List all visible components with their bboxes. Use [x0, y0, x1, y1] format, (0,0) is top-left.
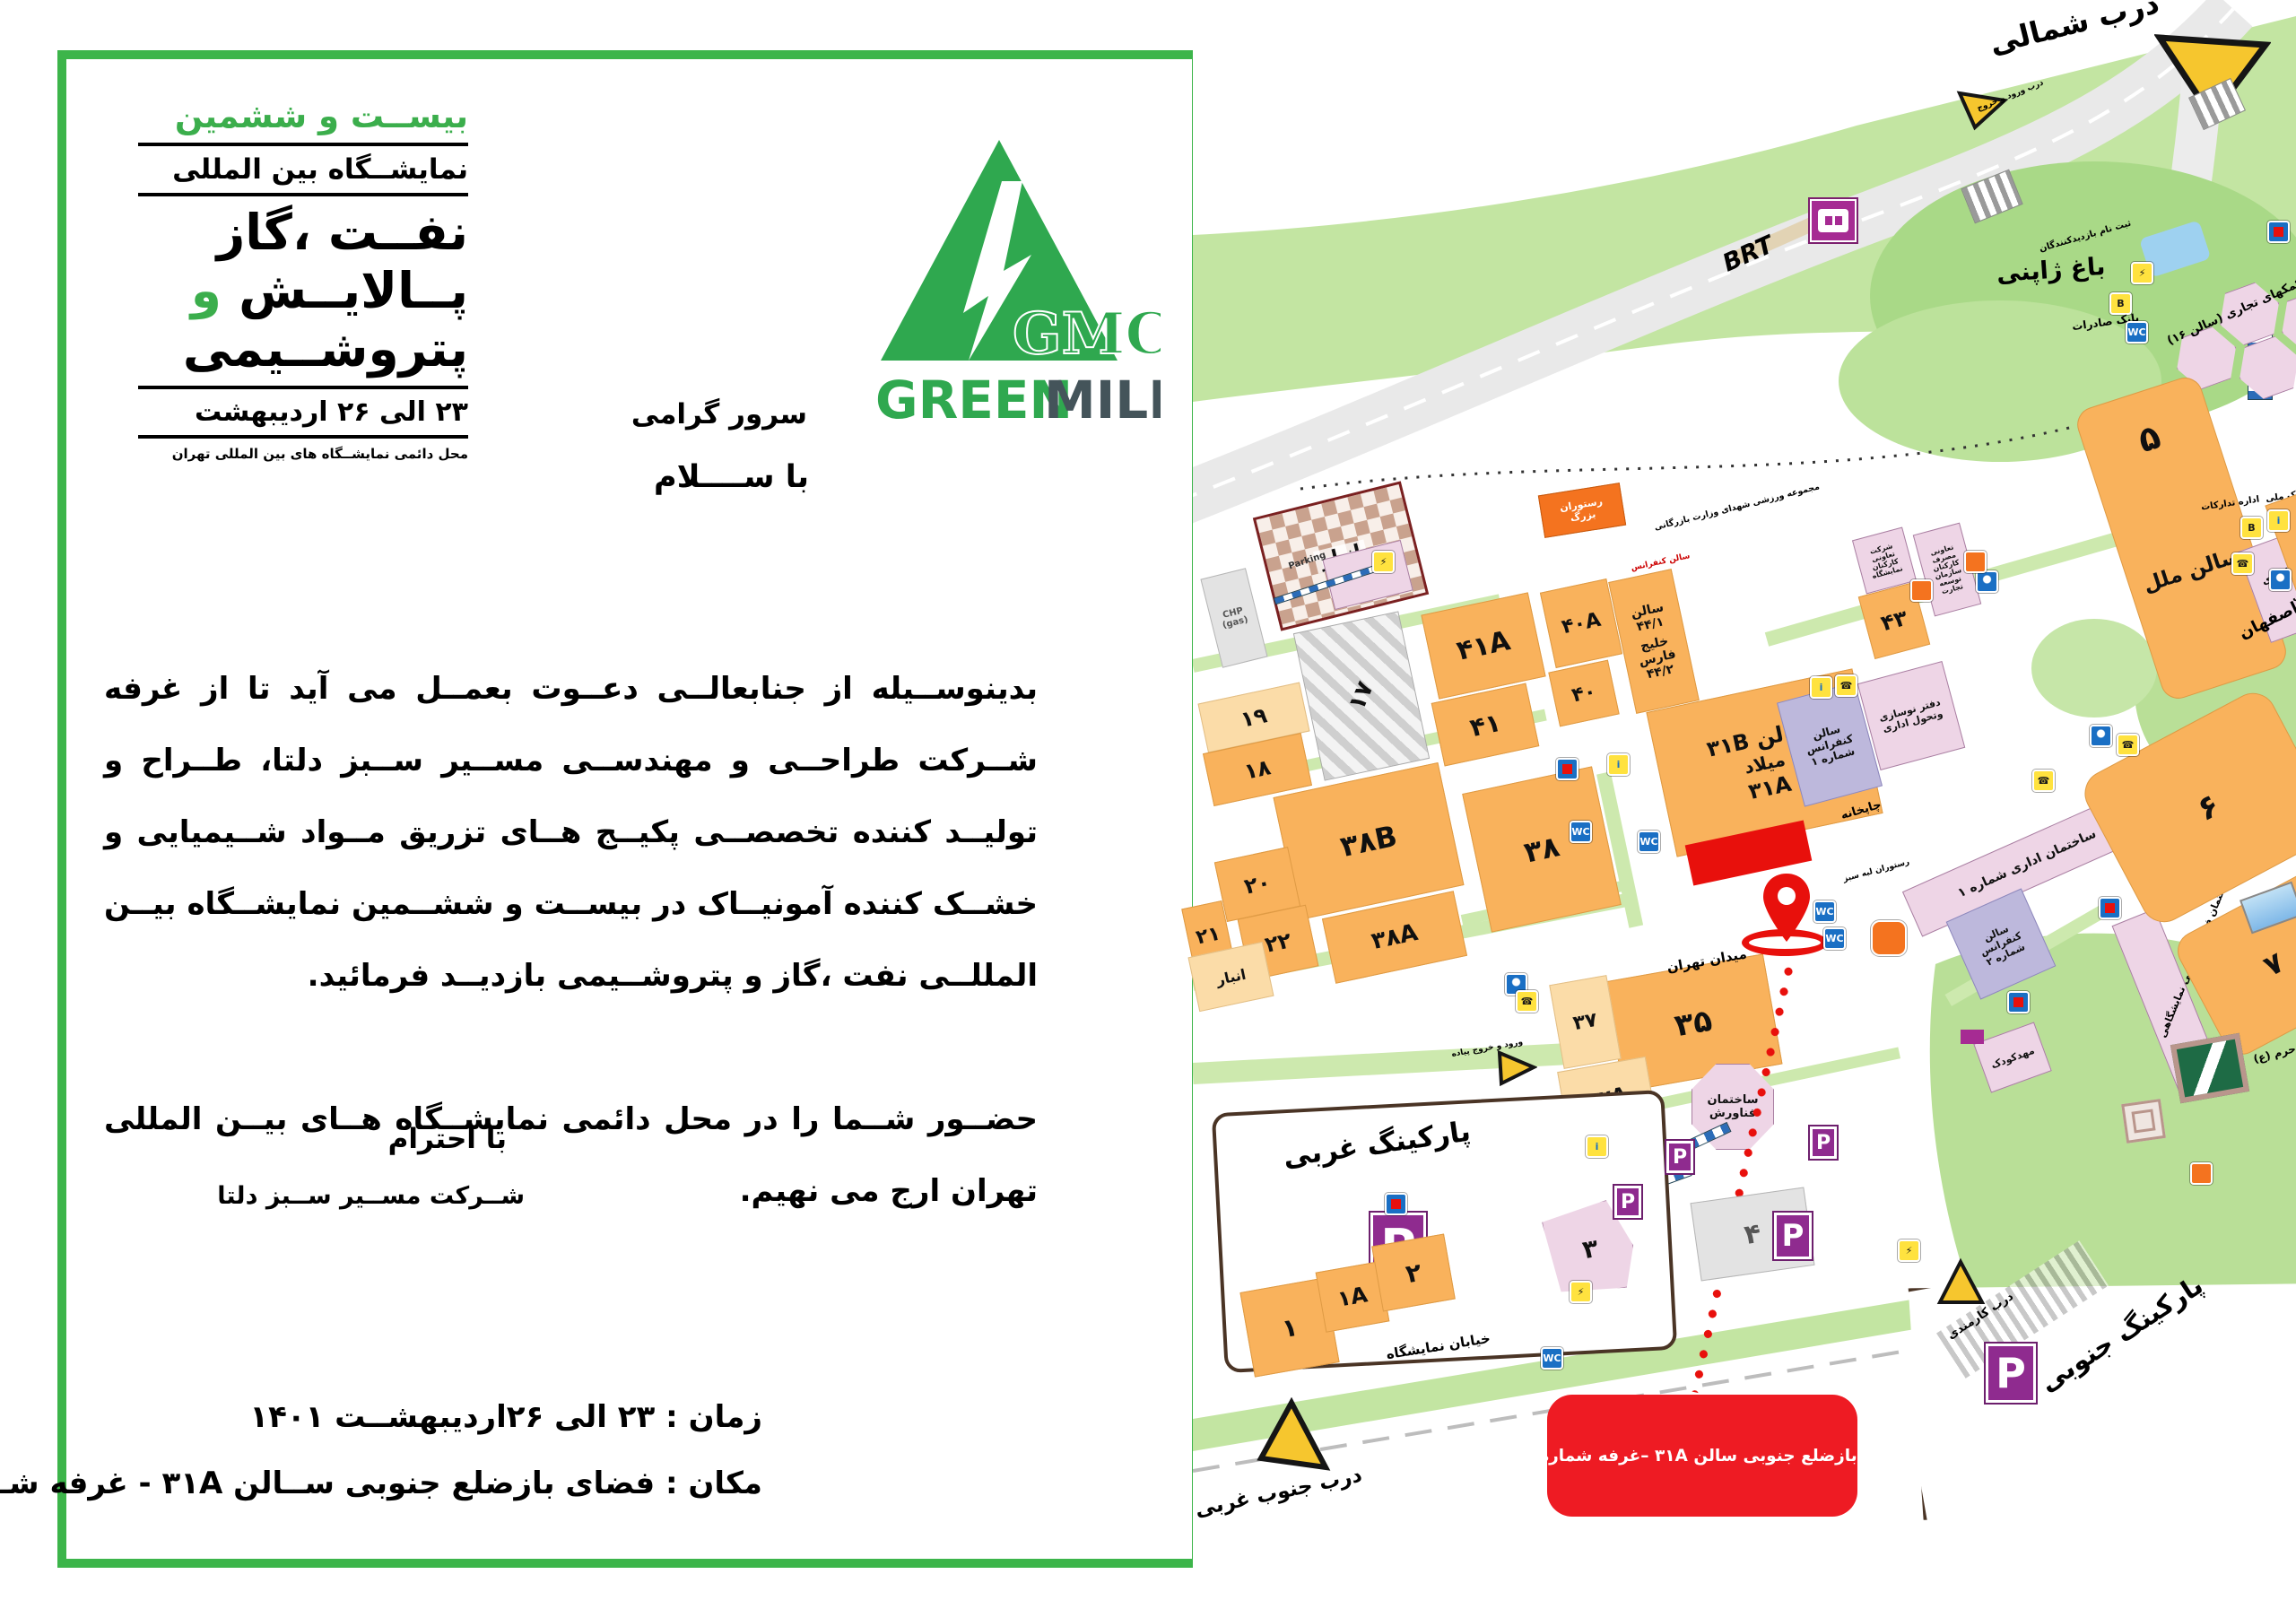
title-line-refining: پــالایــش و	[138, 262, 468, 320]
hall-2: ۲	[1371, 1233, 1456, 1311]
hall-1a-label: ۱A	[1335, 1282, 1370, 1311]
booth-callout-text: فضای بازضلع جنوبی سالن ۳۱A –غرفه شماره ۴…	[1493, 1447, 1912, 1465]
courtyard-icon	[2121, 1099, 2166, 1144]
event-time: زمان : ۲۳ الی ۲۶اردیبهشــت ۱۴۰۱	[249, 1399, 762, 1435]
electric-icon: ⚡	[2131, 262, 2153, 284]
info-icon: i	[2267, 509, 2290, 532]
brt-bus-icon	[1810, 199, 1857, 242]
hall-5-number: ۵	[2134, 416, 2166, 460]
electric-icon: ⚡	[1372, 551, 1395, 573]
restroom-icon	[2269, 569, 2292, 591]
phone-icon: ☎	[2032, 770, 2055, 792]
invitation-flyer: بیســت و ششمین نمایشــگاه بین المللی نفـ…	[0, 0, 2296, 1609]
hall-21-label: ۲۱	[1194, 922, 1222, 949]
wc-icon: WC	[1638, 831, 1660, 853]
aid-station-icon	[1556, 758, 1578, 780]
hall-41-label: ۴۱	[1467, 707, 1503, 742]
hall-44-2-label: خلیج فارس ۴۴/۲	[1622, 631, 1692, 686]
hall-38b-label: ۳۸B	[1337, 819, 1400, 864]
aid-station-icon	[2099, 897, 2121, 919]
logo-gmc-text: GMC	[1013, 300, 1161, 368]
hall-17-label: ۱۷	[1344, 678, 1379, 715]
wc-icon: WC	[1570, 821, 1592, 843]
parking-p-icon: P	[1614, 1186, 1641, 1218]
title-line-petrochemical: پتروشــیمی	[138, 320, 468, 378]
hall-7-label: ۷	[2257, 945, 2289, 984]
title-line-intl: نمایشــگاه بین المللی	[138, 153, 468, 186]
wc-icon: WC	[2126, 321, 2148, 344]
phone-icon: ☎	[1835, 674, 1857, 697]
company-signature: شــرکت مســیر ســبز دلتا	[217, 1182, 525, 1210]
title-line-venue: محل دائمی نمایشــگاه های بین المللی تهرا…	[138, 446, 468, 462]
hall-40a-label: ۴۰A	[1560, 608, 1603, 639]
phone-icon: ☎	[2231, 552, 2254, 575]
info-icon: i	[1586, 1135, 1608, 1158]
wc-icon: WC	[1823, 927, 1846, 950]
green-mile-logo: GMC GREEN MILE	[856, 129, 1161, 434]
restaurant-icon	[1910, 579, 1933, 602]
electric-icon: ⚡	[1898, 1239, 1920, 1262]
info-icon: i	[1810, 676, 1832, 699]
staff-gate-icon	[1935, 1257, 1986, 1308]
hall-1-label: ۱	[1280, 1311, 1300, 1343]
hall-19-label: ۱۹	[1239, 702, 1269, 732]
shrine-icon	[2170, 1033, 2249, 1104]
invitation-letter: بیســت و ششمین نمایشــگاه بین المللی نفـ…	[57, 50, 1201, 1568]
parking-p-icon: P	[1666, 1141, 1693, 1173]
event-place: مکان : فضای بازضلع جنوبی ســالن ۳۱A - غر…	[0, 1465, 762, 1501]
warehouse-2-label: انبار	[1214, 965, 1247, 987]
hall-41a-label: ۴۱A	[1454, 625, 1513, 667]
title-line-dates: ۲۳ الی ۲۶ اردیبهشت	[138, 396, 468, 428]
hall-3-label: ۳	[1580, 1232, 1601, 1264]
big-restaurant-label: رستوران بزرگ	[1559, 495, 1605, 525]
bank-b-icon: B	[2240, 517, 2263, 539]
aid-station-icon	[1385, 1193, 1407, 1215]
transit-stop-icon	[1961, 1030, 1984, 1044]
south-parking-p-icon: P	[1986, 1344, 2036, 1403]
restaurant-icon	[2190, 1162, 2213, 1185]
salutation: سرور گرامی	[631, 398, 807, 431]
info-icon: i	[1607, 753, 1630, 776]
restroom-icon	[2090, 725, 2112, 747]
hall-35-label: ۳۵	[1672, 1002, 1715, 1044]
phone-icon: ☎	[1516, 990, 1538, 1013]
exhibition-map: درب شمالی درب ورود و خروج درب جنوب غربی …	[1193, 0, 2296, 1609]
restroom-icon	[1976, 570, 1998, 593]
logo-mile-text: MILE	[1044, 370, 1161, 431]
title-line-ordinal: بیســت و ششمین	[138, 97, 468, 135]
pin-ring	[1742, 929, 1828, 956]
divider	[138, 193, 468, 196]
aid-station-icon	[2007, 991, 2030, 1013]
electric-icon: ⚡	[1570, 1281, 1592, 1303]
pedestrian-gate-icon	[1494, 1048, 1537, 1087]
hall-18-label: ۱۸	[1242, 754, 1273, 784]
hall-37-label: ۳۷	[1571, 1009, 1599, 1035]
title-refining-word: پــالایــش	[239, 262, 468, 319]
hall-22-label: ۲۲	[1263, 927, 1293, 957]
regards: با احترام	[388, 1123, 507, 1155]
aid-station-icon	[2267, 221, 2290, 243]
title-and-word: و	[191, 262, 222, 319]
hall-38-label: ۳۸	[1521, 829, 1562, 869]
hall-20-label: ۲۰	[1242, 869, 1273, 899]
letter-body-paragraph-1: بدینوســیله از جنابعالــی دعــوت بعمــل …	[104, 653, 1038, 1012]
hall-43-label: ۴۳	[1878, 605, 1910, 637]
southwest-gate-icon	[1256, 1397, 1331, 1474]
parking-p-icon: P	[1810, 1126, 1837, 1159]
title-line-oil-gas: نفــت ،گاز	[138, 204, 468, 262]
hall-5-name: سالن ملل	[2141, 544, 2244, 597]
hall-6-label: ۶	[2191, 787, 2226, 829]
exhibition-title-block: بیســت و ششمین نمایشــگاه بین المللی نفـ…	[138, 97, 468, 462]
hall-40-label: ۴۰	[1570, 680, 1597, 707]
restaurant-icon	[1964, 551, 1987, 573]
booth-callout: فضای بازضلع جنوبی سالن ۳۱A –غرفه شماره ۴…	[1547, 1395, 1857, 1517]
divider	[138, 143, 468, 146]
wc-icon: WC	[1541, 1347, 1563, 1370]
divider	[138, 435, 468, 439]
hall-4-label: ۴	[1742, 1217, 1762, 1250]
restaurant-icon	[1871, 920, 1907, 956]
divider	[138, 386, 468, 389]
hall-2-label: ۲	[1404, 1257, 1424, 1288]
wc-icon: WC	[1813, 900, 1836, 923]
kindergarten-label: مهدکودک	[1989, 1044, 2036, 1071]
greeting: با ســــلام	[654, 459, 809, 495]
phone-icon: ☎	[2117, 734, 2139, 756]
hall-4-p-icon: P	[1774, 1213, 1812, 1259]
hall-38a-label: ۳۸A	[1370, 919, 1421, 955]
